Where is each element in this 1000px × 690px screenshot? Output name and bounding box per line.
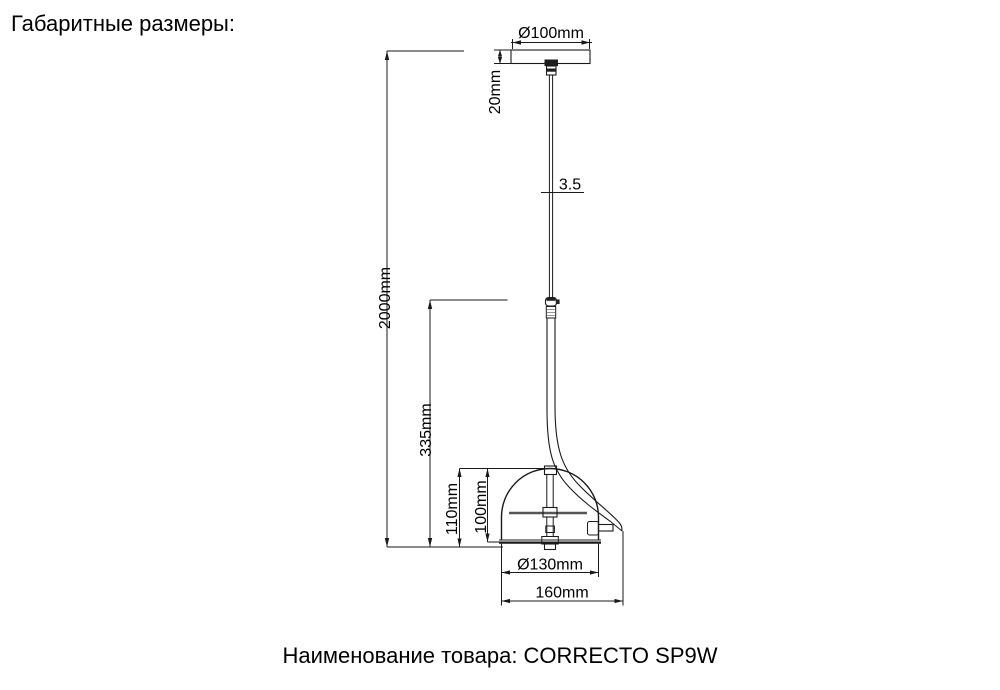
product-name-label: Наименование товара: CORRECTO SP9W [0,643,1000,669]
dim-label-cable-diameter: 3.5 [559,177,581,194]
lamp-socket-lower [545,544,556,550]
dim-label-overall-width: 160mm [535,585,588,602]
arrowhead [428,538,432,547]
stem-outer-edge [555,318,622,531]
stem-inner-edge [547,318,611,522]
dim-label-canopy-diameter: Ø100mm [518,25,584,42]
connector-ball-band [547,298,556,301]
dimension-canopy-diameter: Ø100mm [511,25,592,49]
arrowhead [502,599,511,603]
arrowhead [498,57,502,64]
arrowhead [385,51,389,60]
dim-label-shade-diameter: Ø130mm [517,557,583,574]
dim-label-canopy-height: 20mm [487,70,504,114]
arrowhead [590,570,599,574]
canopy-nut-band [547,69,557,72]
shade-side-nut-slit [590,527,596,530]
page: Габаритные размеры: [0,0,1000,690]
lamp-shade [499,466,613,550]
rod-top-nut [545,466,557,475]
dimension-overall-height: 2000mm [377,51,503,547]
dim-label-shade-inner-height: 100mm [473,480,490,533]
shade-dome-outline [502,469,599,541]
dimension-shade-inner-height: 100mm [473,469,501,543]
arrowhead [457,539,461,548]
arrowhead [502,570,511,574]
side-connector-tube [599,525,614,532]
dimension-lower-assembly-height: 335mm [418,300,508,547]
dimension-canopy-height: 20mm [487,50,511,114]
suspension-cable [549,75,552,298]
stem-tip-cut [611,522,623,532]
arrowhead [485,469,489,478]
dim-label-overall-height: 2000mm [377,267,394,329]
arrowhead [428,300,432,309]
canopy-flange [545,60,559,67]
curved-stem [547,318,622,531]
arrowhead [498,50,502,57]
dimension-cable-diameter: 3.5 [541,177,584,194]
arrowhead [485,534,489,543]
dim-label-shade-outer-height: 110mm [444,483,461,535]
connector-side-nub [556,300,560,305]
dimension-shade-outer-height: 110mm [444,469,544,548]
dim-label-lower-assembly-height: 335mm [418,403,435,456]
cable-stem-connector [546,298,560,319]
arrowhead [385,538,389,547]
canopy [511,50,590,75]
dimension-drawing: Ø100mm 20mm 3.5 2000mm [0,0,1000,690]
arrowhead [457,469,461,478]
arrowhead [615,599,624,603]
